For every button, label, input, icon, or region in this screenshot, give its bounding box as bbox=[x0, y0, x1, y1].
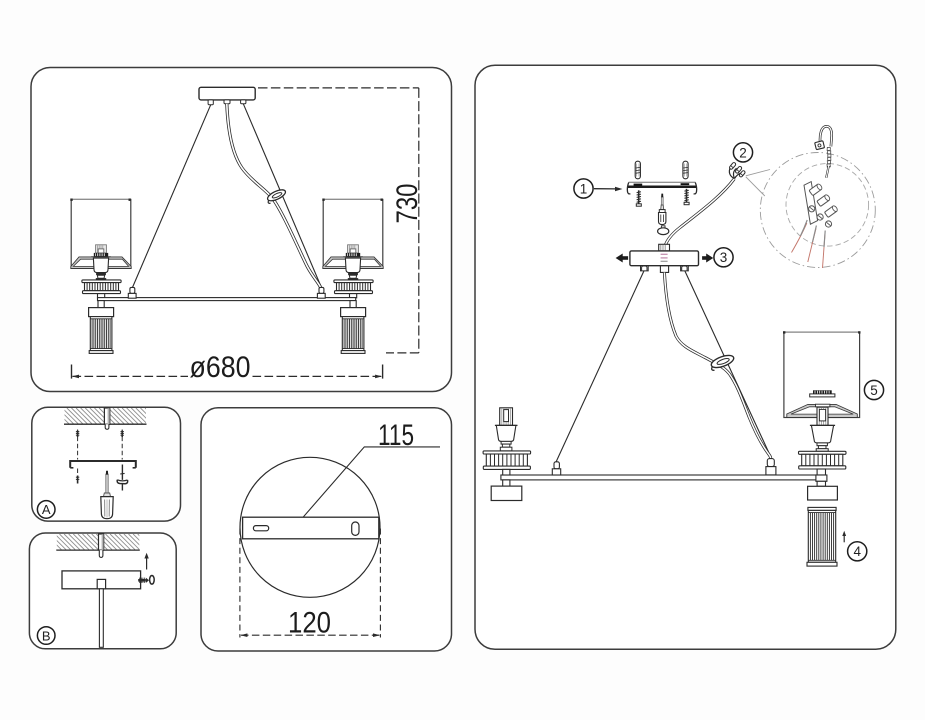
svg-text:5: 5 bbox=[870, 383, 878, 398]
svg-text:3: 3 bbox=[720, 250, 728, 265]
svg-text:115: 115 bbox=[378, 419, 414, 452]
svg-text:730: 730 bbox=[391, 184, 424, 224]
svg-text:120: 120 bbox=[288, 607, 331, 640]
svg-text:4: 4 bbox=[853, 544, 861, 559]
svg-text:A: A bbox=[42, 502, 51, 517]
svg-text:B: B bbox=[42, 628, 51, 643]
svg-text:ø680: ø680 bbox=[190, 351, 251, 384]
svg-text:1: 1 bbox=[580, 181, 588, 196]
svg-text:2: 2 bbox=[739, 145, 747, 160]
